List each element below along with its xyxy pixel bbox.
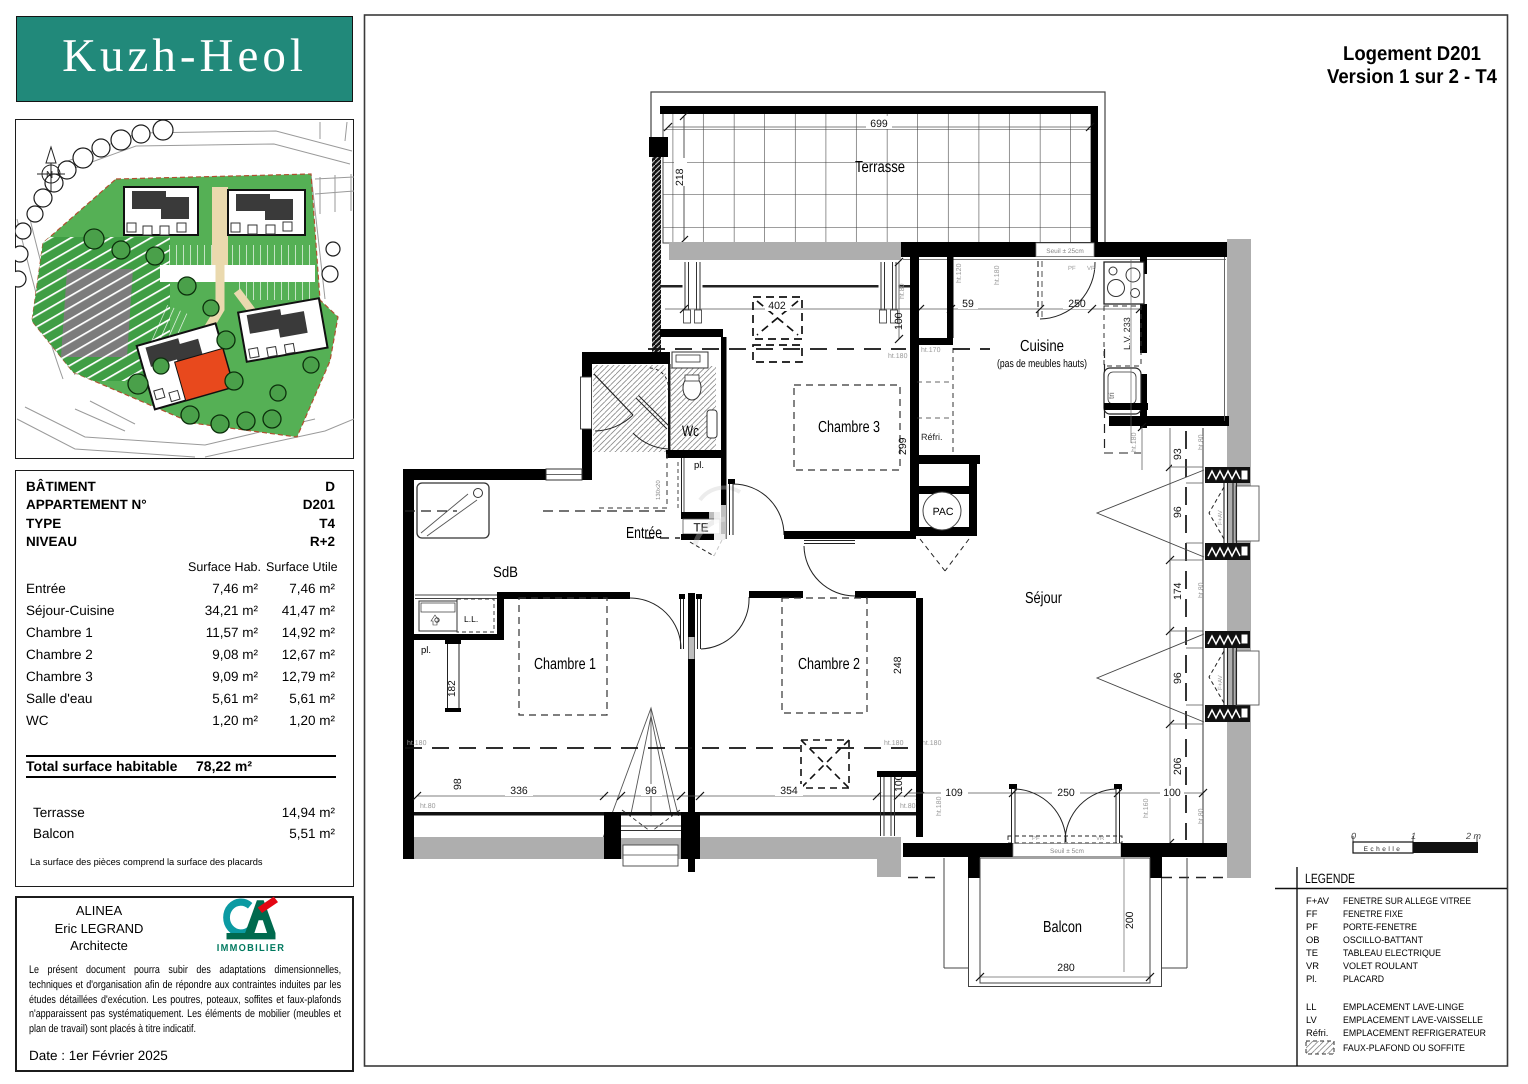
svg-text:93: 93 [1172,448,1184,460]
svg-text:ht.160: ht.160 [1142,798,1150,818]
svg-text:SdB: SdB [493,564,518,581]
svg-text:100: 100 [893,312,905,330]
svg-text:EMPLACEMENT LAVE-LINGE: EMPLACEMENT LAVE-LINGE [1343,1001,1464,1012]
svg-text:ht.80: ht.80 [1197,808,1205,824]
svg-text:ht.80: ht.80 [1197,582,1205,598]
svg-text:98: 98 [452,778,464,790]
svg-text:Version 1 sur 2 - T4: Version 1 sur 2 - T4 [1327,66,1498,88]
svg-text:336: 336 [510,785,528,797]
svg-text:FAUX-PLAFOND OU SOFFITE: FAUX-PLAFOND OU SOFFITE [1343,1042,1465,1053]
svg-text:182: 182 [447,680,458,697]
svg-text:ht.180: ht.180 [884,739,904,747]
svg-text:ht.180: ht.180 [922,739,942,747]
svg-text:ht.80: ht.80 [1197,434,1205,450]
svg-text:ht.80: ht.80 [420,802,436,810]
svg-text:354: 354 [780,785,798,797]
svg-text:L.L.: L.L. [464,614,478,624]
svg-text:Chambre 3: Chambre 3 [818,419,880,436]
svg-text:250: 250 [1057,787,1075,799]
svg-text:ht.120: ht.120 [955,263,963,283]
svg-text:(pas de meubles hauts): (pas de meubles hauts) [997,358,1087,370]
svg-text:OB: OB [1306,934,1320,945]
svg-text:96: 96 [1172,506,1184,518]
svg-text:FENETRE SUR ALLEGE VITREE: FENETRE SUR ALLEGE VITREE [1343,895,1471,906]
svg-text:VR: VR [1087,265,1096,272]
svg-text:OSCILLO-BATTANT: OSCILLO-BATTANT [1343,934,1423,945]
svg-text:Entrée: Entrée [626,525,662,542]
svg-text:96: 96 [1172,672,1184,684]
svg-text:L.V. 233: L.V. 233 [1122,317,1132,350]
svg-text:PF: PF [1306,921,1318,932]
svg-text:218: 218 [674,168,686,186]
svg-text:Logement D201: Logement D201 [1343,43,1481,65]
svg-text:PF: PF [1068,265,1076,272]
svg-text:0: 0 [1351,831,1356,841]
svg-text:EMPLACEMENT REFRIGERATEUR: EMPLACEMENT REFRIGERATEUR [1343,1027,1486,1038]
svg-text:LL: LL [1306,1001,1316,1012]
svg-text:ht.180: ht.180 [993,265,1001,285]
svg-text:130x20: 130x20 [655,480,662,500]
svg-text:ht.80: ht.80 [900,802,916,810]
svg-text:LEGENDE: LEGENDE [1305,871,1355,886]
svg-text:109: 109 [945,787,963,799]
svg-text:100: 100 [1163,787,1181,799]
svg-text:ht.170: ht.170 [921,346,941,354]
svg-text:F+AV: F+AV [1217,510,1224,525]
svg-text:Seuil ± 5cm: Seuil ± 5cm [1050,848,1084,855]
svg-text:ht.180: ht.180 [935,796,943,816]
svg-text:tri: tri [1107,392,1116,399]
svg-text:402: 402 [768,300,786,312]
svg-text:FF: FF [1306,908,1318,919]
svg-text:PLACARD: PLACARD [1343,973,1384,984]
svg-text:F+AV: F+AV [1306,895,1330,906]
svg-text:TE: TE [1306,947,1318,958]
svg-text:96: 96 [645,785,657,797]
svg-text:Wc: Wc [682,423,699,440]
svg-text:Balcon: Balcon [1043,919,1082,936]
svg-text:TABLEAU ELECTRIQUE: TABLEAU ELECTRIQUE [1343,947,1441,958]
svg-text:Seuil ± 25cm: Seuil ± 25cm [1046,248,1084,255]
svg-text:Réfri.: Réfri. [921,432,943,442]
svg-text:ht.180: ht.180 [407,739,427,747]
svg-text:Réfri.: Réfri. [1306,1027,1328,1038]
svg-text:Cuisine: Cuisine [1020,338,1064,355]
svg-text:PAC: PAC [933,506,954,518]
svg-text:Chambre 1: Chambre 1 [534,656,596,673]
svg-text:ht.180: ht.180 [888,352,908,360]
svg-text:174: 174 [1172,582,1184,600]
svg-text:248: 248 [892,656,904,674]
svg-text:1: 1 [1411,831,1416,841]
svg-text:2 m: 2 m [1465,831,1482,841]
svg-text:LV: LV [1306,1014,1318,1025]
svg-text:Echelle: Echelle [1364,846,1403,853]
svg-text:299: 299 [897,437,909,455]
svg-text:Chambre 2: Chambre 2 [798,656,860,673]
svg-text:VOLET ROULANT: VOLET ROULANT [1343,960,1418,971]
svg-text:pl.: pl. [694,460,704,471]
svg-text:Pl.: Pl. [1306,973,1317,984]
svg-text:Terrasse: Terrasse [855,159,905,176]
svg-text:200: 200 [1124,911,1136,929]
svg-text:699: 699 [870,118,888,130]
svg-text:EMPLACEMENT LAVE-VAISSELLE: EMPLACEMENT LAVE-VAISSELLE [1343,1014,1483,1025]
svg-text:PORTE-FENETRE: PORTE-FENETRE [1343,921,1417,932]
svg-text:FENETRE FIXE: FENETRE FIXE [1343,908,1403,919]
svg-text:VR: VR [1306,960,1319,971]
svg-text:pl.: pl. [421,645,431,656]
svg-text:59: 59 [962,298,974,310]
svg-text:ht.80: ht.80 [898,283,906,299]
svg-text:Séjour: Séjour [1025,590,1063,607]
svg-text:280: 280 [1057,962,1075,974]
svg-text:F+AV: F+AV [1217,675,1224,690]
svg-text:206: 206 [1172,757,1184,775]
